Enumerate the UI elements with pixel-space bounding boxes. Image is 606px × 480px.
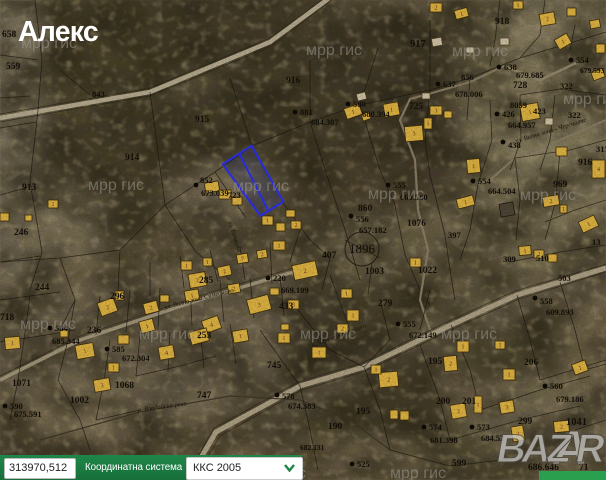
svg-text:Алекс: Алекс xyxy=(18,16,99,48)
svg-text:мрр гис: мрр гис xyxy=(563,91,606,108)
svg-text:мрр гис: мрр гис xyxy=(139,326,195,343)
svg-text:мрр гис: мрр гис xyxy=(306,42,362,59)
svg-text:мрр гис: мрр гис xyxy=(368,186,424,203)
svg-text:мрр гис: мрр гис xyxy=(390,465,446,480)
svg-text:мрр гис: мрр гис xyxy=(300,326,356,343)
svg-text:мрр гис: мрр гис xyxy=(233,178,289,195)
svg-text:мрр гис: мрр гис xyxy=(520,187,576,204)
svg-text:мрр гис: мрр гис xyxy=(20,316,76,333)
svg-text:мрр гис: мрр гис xyxy=(88,177,144,194)
svg-text:мрр гис: мрр гис xyxy=(441,326,497,343)
svg-text:BAZ: BAZ xyxy=(493,426,574,471)
svg-text:мрр гис: мрр гис xyxy=(452,43,508,60)
